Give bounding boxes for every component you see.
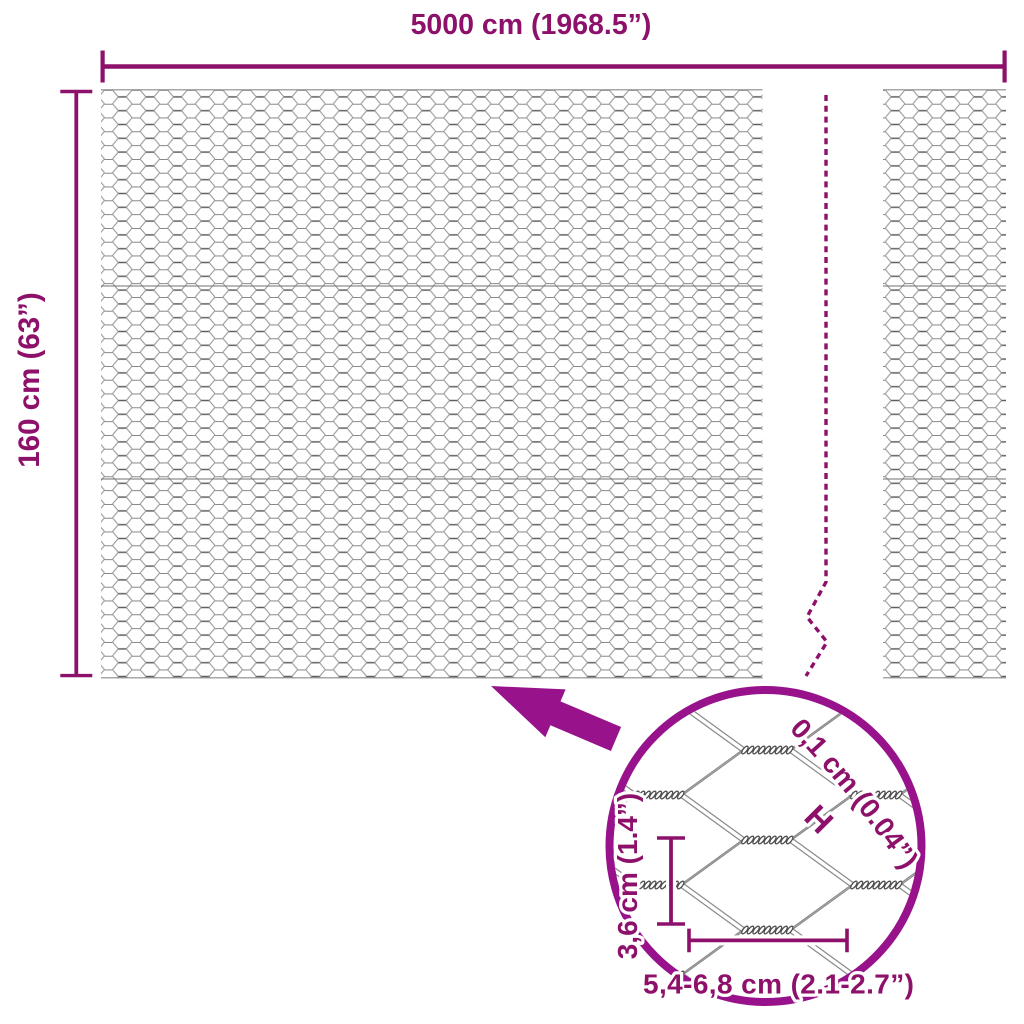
svg-text:5,4-6,8 cm (2.1-2.7”): 5,4-6,8 cm (2.1-2.7”) bbox=[643, 969, 914, 1000]
svg-text:3,6 cm (1.4”): 3,6 cm (1.4”) bbox=[612, 793, 643, 960]
svg-text:160 cm (63”): 160 cm (63”) bbox=[13, 292, 46, 467]
svg-text:5000 cm (1968.5”): 5000 cm (1968.5”) bbox=[411, 9, 652, 41]
